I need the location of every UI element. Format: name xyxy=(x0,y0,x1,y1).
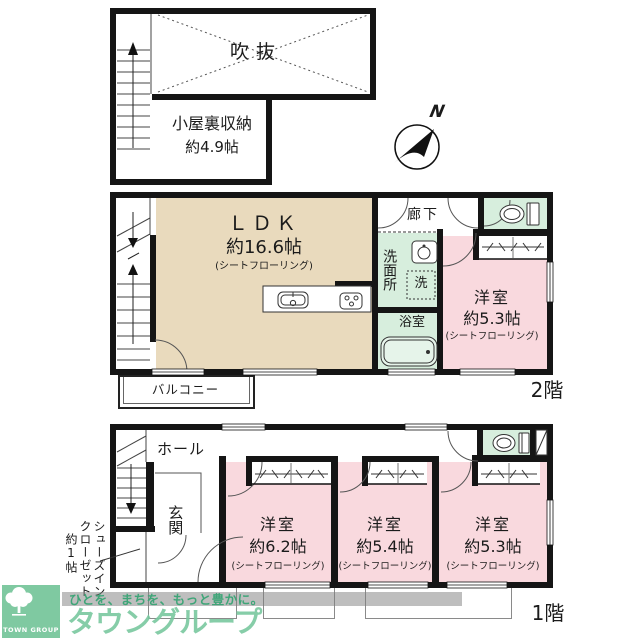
attic-storage-size: 約4.9帖 xyxy=(152,139,272,156)
stairs-2f xyxy=(117,198,150,360)
pipe-shaft xyxy=(536,430,547,455)
stair-down-arrow xyxy=(128,238,138,248)
door-arc-bedroom3 xyxy=(441,462,471,492)
stair-up-arrow xyxy=(128,264,138,275)
washroom-label: 洗面所 xyxy=(381,240,397,300)
bedroom1-size: 約6.2帖 xyxy=(218,538,338,556)
bedroom1-flooring: (シートフローリング) xyxy=(218,562,338,573)
floorplan: 吹抜 小屋裏収納 約4.9帖 N ＬＤＫ 約16.6帖 (シートフローリング) … xyxy=(0,0,640,640)
door-arc-bedroom2 xyxy=(340,462,370,492)
bathtub-icon xyxy=(381,337,437,366)
door-arc-ldk xyxy=(155,340,187,372)
ldk-flooring: (シートフローリング) xyxy=(184,261,344,273)
floor2-label: 2階 xyxy=(515,379,579,402)
attic-storage-name: 小屋裏収納 xyxy=(152,115,272,133)
hallway-label: 廊下 xyxy=(383,207,463,223)
toilet-icon-1f xyxy=(493,433,529,453)
ldk-size: 約16.6帖 xyxy=(184,238,344,259)
door-arc-bedroom-2f xyxy=(443,233,476,266)
balcony-label: バルコニー xyxy=(128,383,243,397)
entrance-label: 玄関 xyxy=(166,497,183,543)
bedroom-2f-name: 洋室 xyxy=(432,289,552,307)
washbasin-icon xyxy=(412,241,437,263)
hall-label: ホール xyxy=(141,441,221,458)
bedroom3-flooring: (シートフローリング) xyxy=(433,562,553,573)
compass-icon xyxy=(394,125,439,169)
brand-company-watermark: タウングループ xyxy=(67,599,261,640)
bedroom-2f-flooring: (シートフローリング) xyxy=(432,332,552,343)
washer-label: 洗 xyxy=(407,277,435,292)
ldk-name: ＬＤＫ xyxy=(184,212,344,235)
door-arc-toilet-1f xyxy=(448,431,478,461)
stairs-attic xyxy=(117,14,151,149)
bedroom2-flooring: (シートフローリング) xyxy=(325,562,445,573)
bedroom3-name: 洋室 xyxy=(433,516,553,534)
bedroom3-size: 約5.3帖 xyxy=(433,538,553,556)
bedroom2-size: 約5.4帖 xyxy=(325,538,445,556)
shoe-closet-pointer xyxy=(100,549,140,561)
logo-text: TOWN GROUP xyxy=(3,626,59,634)
bedroom-2f-size: 約5.3帖 xyxy=(432,310,552,328)
toilet-icon-2f xyxy=(500,203,539,225)
floor1-label: 1階 xyxy=(516,602,580,625)
void-label: 吹抜 xyxy=(196,42,316,64)
town-group-logo: TOWN GROUP xyxy=(2,585,60,638)
bedroom2-name: 洋室 xyxy=(325,516,445,534)
bedroom1-name: 洋室 xyxy=(218,516,338,534)
door-arc-bedroom1 xyxy=(228,462,262,496)
stair-up-arrow xyxy=(128,42,138,55)
tree-icon xyxy=(2,585,36,617)
